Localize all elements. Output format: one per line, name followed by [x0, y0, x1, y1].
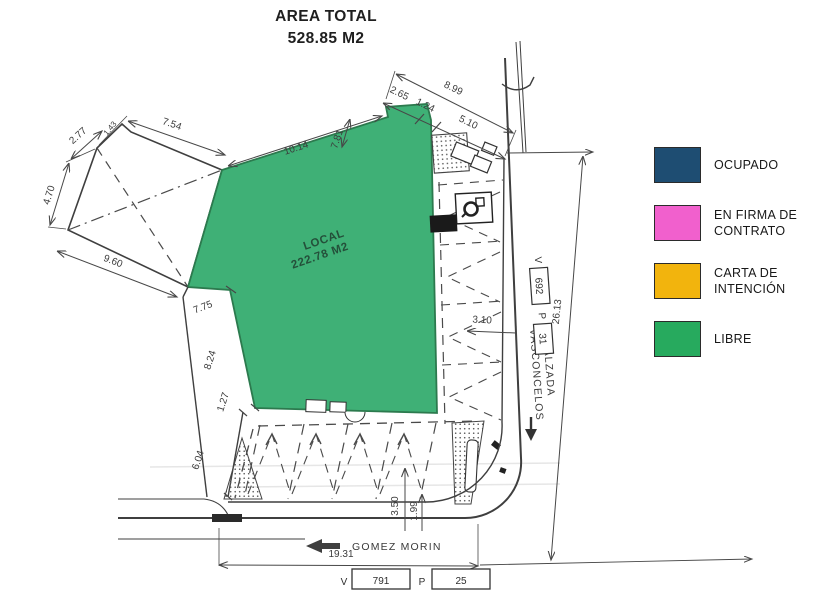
legend-swatch-en-firma: [654, 205, 701, 241]
entrance-detail-b: [330, 402, 346, 413]
equipment-block: [430, 214, 458, 232]
cadastre-right-v-num: 692: [532, 277, 544, 295]
dim-8-99: 8.99: [442, 80, 465, 99]
faint-guide-lines: [150, 463, 560, 487]
dim-1-99: 1.99: [409, 501, 420, 521]
road-top-line-a: [516, 42, 523, 153]
legend-label-ocupado: OCUPADO: [714, 157, 822, 173]
cadastre-bottom-p: P: [419, 577, 426, 588]
dim-1-27: 1.27: [215, 391, 232, 413]
dim-7-54: 7.54: [161, 116, 183, 133]
site-plan-canvas: AREA TOTAL 528.85 M2: [0, 0, 828, 600]
dim-3-10: 3.10: [472, 315, 492, 327]
dim-26-13: 26.13: [551, 298, 565, 324]
dim-2-65: 2.65: [388, 85, 411, 104]
cadastre-bottom: V 791 P 25: [341, 569, 490, 589]
plan-title: AREA TOTAL 528.85 M2: [237, 6, 415, 51]
cadastre-right-p-num: 31: [536, 333, 548, 345]
dim-6-04: 6.04: [190, 449, 207, 471]
legend-item-en-firma: EN FIRMA DE CONTRATO: [654, 205, 822, 241]
plan-title-line1: AREA TOTAL: [237, 6, 415, 28]
legend-label-en-firma: EN FIRMA DE CONTRATO: [714, 207, 822, 240]
cadastre-right-v: V: [532, 256, 543, 264]
cadastre-bottom-v-num: 791: [373, 576, 390, 587]
legend-item-ocupado: OCUPADO: [654, 147, 822, 183]
legend-swatch-libre: [654, 321, 701, 357]
dim-19-31: 19.31: [328, 549, 353, 560]
legend-swatch-carta: [654, 263, 701, 299]
dim-3-50: 3.50: [390, 496, 401, 516]
dim-4-70: 4.70: [42, 184, 58, 206]
legend-swatch-ocupado: [654, 147, 701, 183]
legend: OCUPADO EN FIRMA DE CONTRATO CARTA DE IN…: [654, 147, 822, 357]
cadastre-bottom-v: V: [341, 577, 348, 588]
dim-8-24: 8.24: [202, 349, 219, 371]
road-top-line-b: [520, 41, 526, 152]
cadastre-right-p: P: [536, 312, 547, 320]
legend-item-carta: CARTA DE INTENCIÓN: [654, 263, 822, 299]
dim-5-10: 5.10: [457, 114, 480, 133]
accessible-stall-box: [455, 192, 493, 224]
gomez-morin-label: GOMEZ MORIN: [352, 541, 442, 553]
local-parcel: LOCAL 222.78 M2: [188, 104, 437, 422]
hatched-triangle: [224, 438, 262, 499]
right-parking-strip: [430, 133, 503, 424]
dim-7-75: 7.75: [192, 299, 215, 316]
legend-item-libre: LIBRE: [654, 321, 822, 357]
corner-pillar: [465, 440, 479, 493]
cadastre-bottom-p-num: 25: [455, 576, 467, 587]
curb-black-bar: [212, 514, 242, 522]
legend-label-carta: CARTA DE INTENCIÓN: [714, 265, 822, 298]
plan-title-line2: 528.85 M2: [237, 28, 415, 50]
entrance-detail-a: [306, 400, 326, 413]
dim-2-77: 2.77: [67, 125, 89, 146]
accessible-stall: [455, 192, 493, 224]
legend-label-libre: LIBRE: [714, 331, 822, 347]
door-swing-arc: [345, 412, 365, 422]
corner-mark-b: [499, 467, 506, 474]
